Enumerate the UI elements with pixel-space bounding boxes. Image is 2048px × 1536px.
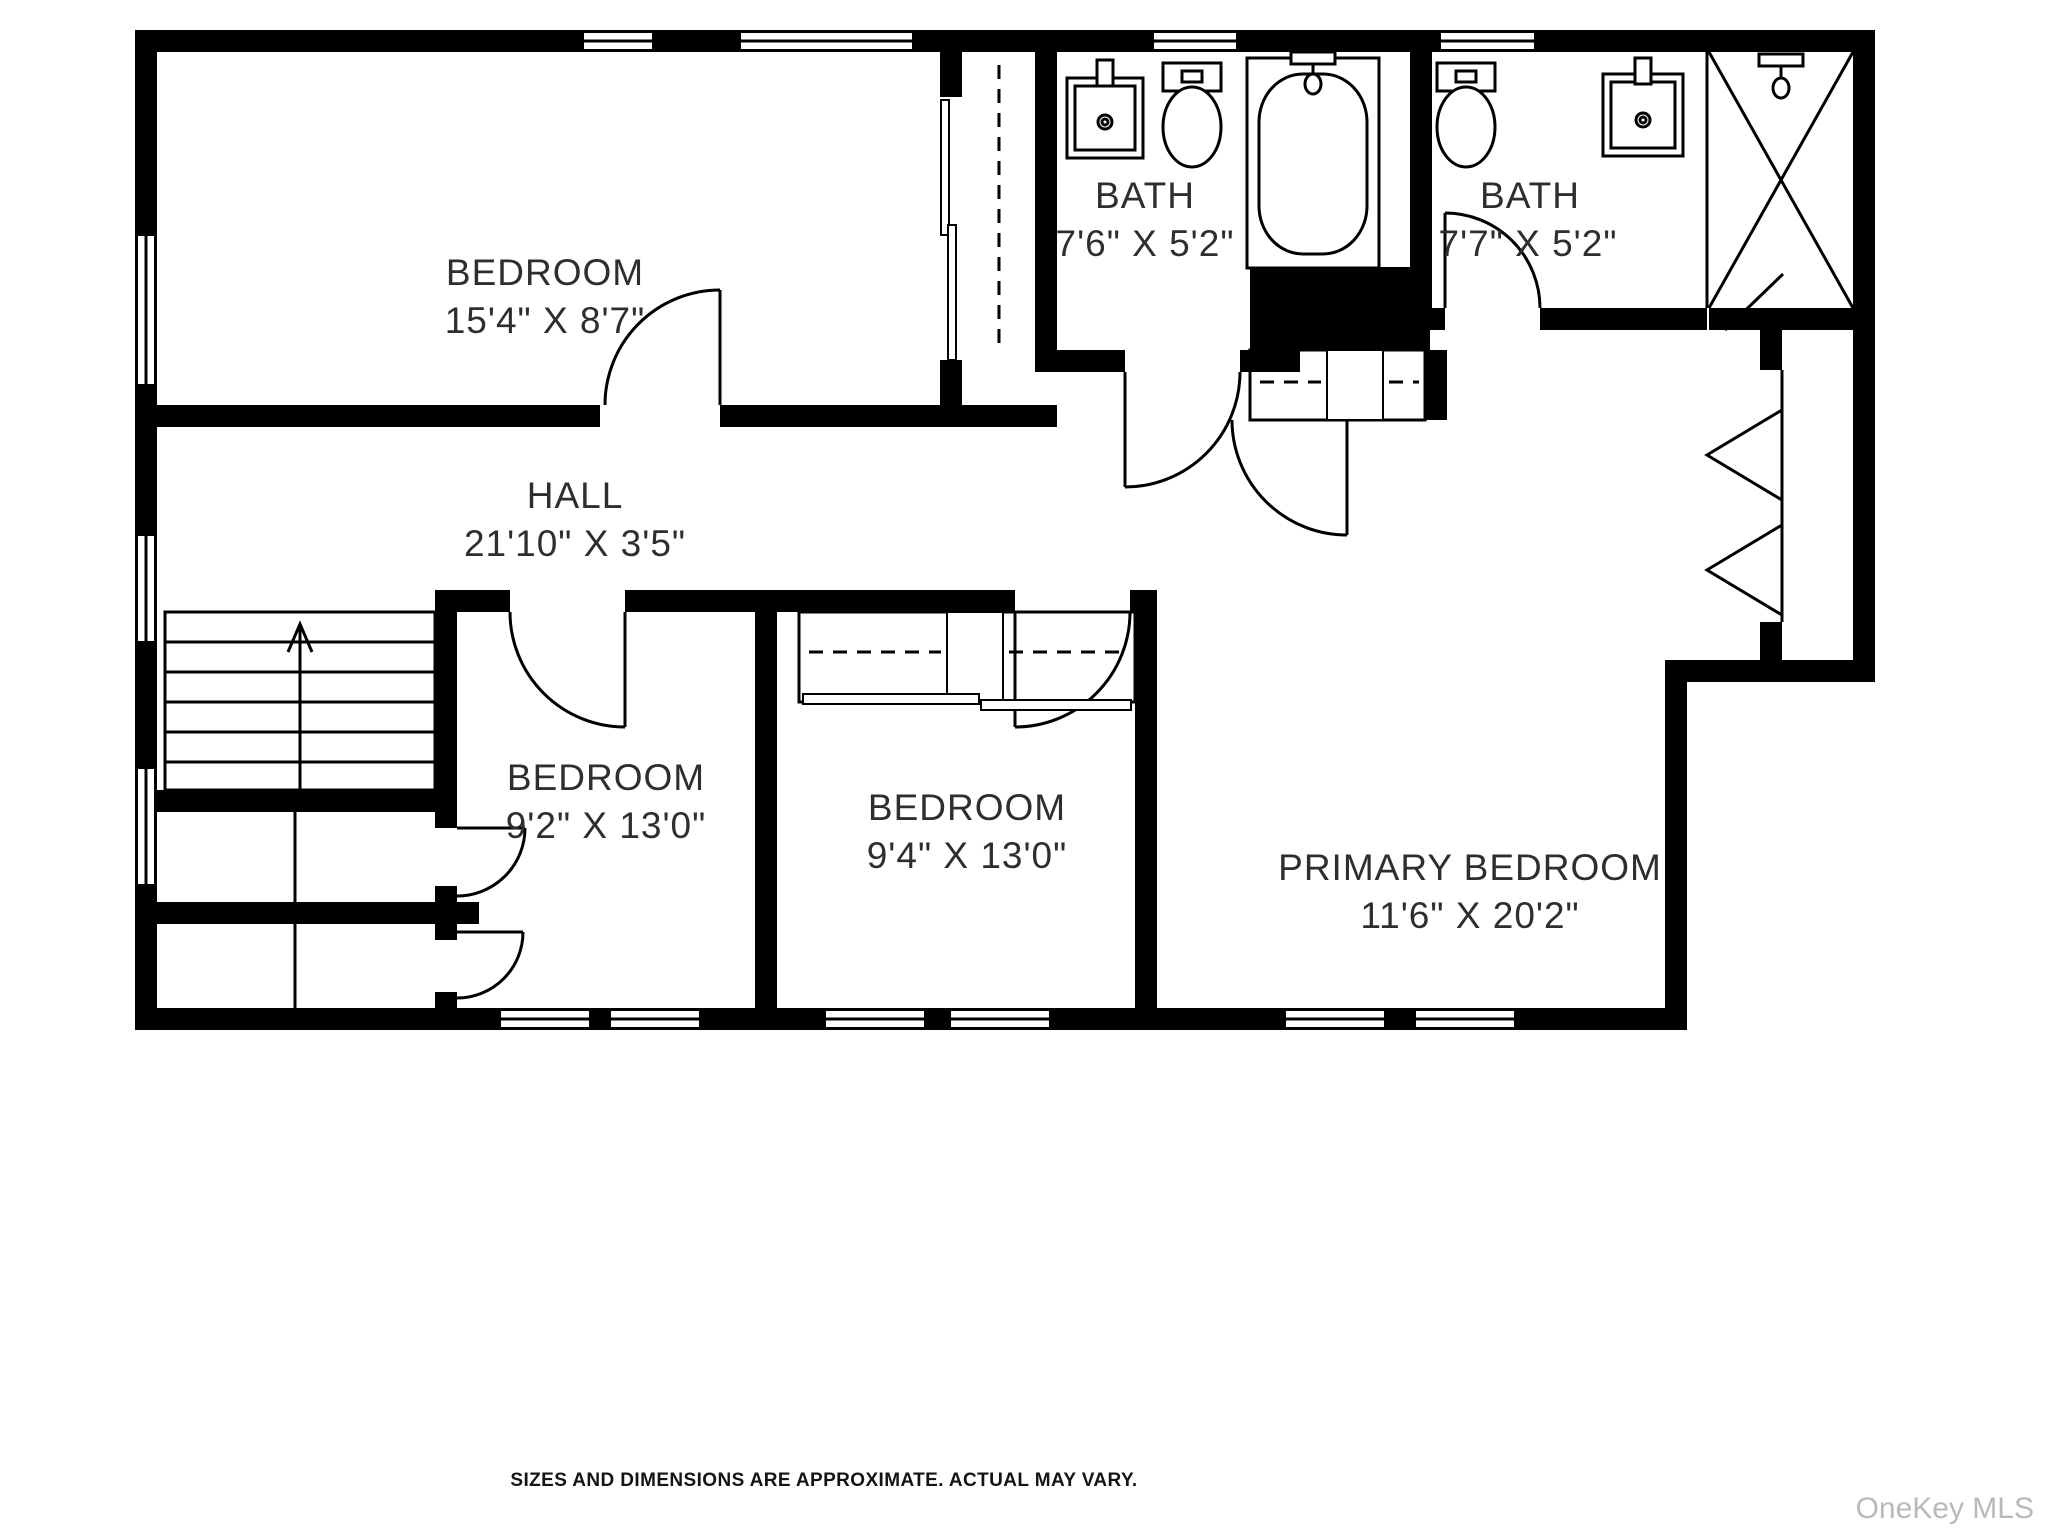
window-icon	[137, 768, 155, 885]
bathtub-icon	[1247, 52, 1379, 268]
shower-icon	[1707, 52, 1853, 308]
toilet-icon	[1437, 63, 1495, 167]
sink-icon	[1067, 60, 1143, 158]
door-arc	[510, 612, 625, 727]
room-name: BEDROOM	[868, 787, 1066, 828]
onekey-mls-watermark: OneKey MLS	[1856, 1492, 2034, 1526]
room-dimensions: 7'6" X 5'2"	[1056, 223, 1235, 264]
door-arc	[1232, 420, 1347, 535]
window-icon	[583, 32, 653, 50]
room-dimensions: 11'6" X 20'2"	[1360, 895, 1579, 936]
stairs-icon	[165, 612, 435, 790]
bifold-door-icon	[1707, 410, 1782, 500]
room-dimensions: 9'4" X 13'0"	[867, 835, 1068, 876]
door-arc	[1125, 372, 1240, 487]
floorplan-svg: BEDROOM 15'4" X 8'7" BATH 7'6" X 5'2" BA…	[135, 30, 1875, 1030]
window-icon	[137, 535, 155, 642]
window-icon	[1153, 32, 1237, 50]
window-icon	[500, 1010, 590, 1028]
window-icon	[950, 1010, 1050, 1028]
window-icon	[610, 1010, 700, 1028]
middle-bedroom-closet	[799, 612, 1135, 710]
floorplan-canvas: BEDROOM 15'4" X 8'7" BATH 7'6" X 5'2" BA…	[135, 30, 1875, 1030]
room-name: HALL	[527, 475, 624, 516]
primary-closet	[1707, 370, 1782, 622]
closet-door-arc	[457, 932, 523, 998]
room-name: BEDROOM	[446, 252, 644, 293]
room-dimensions: 7'7" X 5'2"	[1439, 223, 1618, 264]
room-name: BEDROOM	[507, 757, 705, 798]
sliding-closet	[941, 65, 999, 360]
sink-icon	[1603, 58, 1683, 156]
window-icon	[1415, 1010, 1515, 1028]
room-dimensions: 21'10" X 3'5"	[464, 523, 686, 564]
bifold-door-icon	[1707, 525, 1782, 615]
toilet-icon	[1163, 63, 1221, 167]
floorplan-page: BEDROOM 15'4" X 8'7" BATH 7'6" X 5'2" BA…	[0, 0, 2048, 1536]
window-icon	[137, 235, 155, 385]
disclaimer-text: SIZES AND DIMENSIONS ARE APPROXIMATE. AC…	[424, 1470, 1224, 1492]
window-icon	[740, 32, 913, 50]
window-icon	[825, 1010, 925, 1028]
window-icon	[1440, 32, 1535, 50]
room-dimensions: 9'2" X 13'0"	[506, 805, 707, 846]
room-dimensions: 15'4" X 8'7"	[445, 300, 646, 341]
room-name: PRIMARY BEDROOM	[1278, 847, 1662, 888]
room-name: BATH	[1095, 175, 1195, 216]
room-name: BATH	[1480, 175, 1580, 216]
window-icon	[1285, 1010, 1385, 1028]
